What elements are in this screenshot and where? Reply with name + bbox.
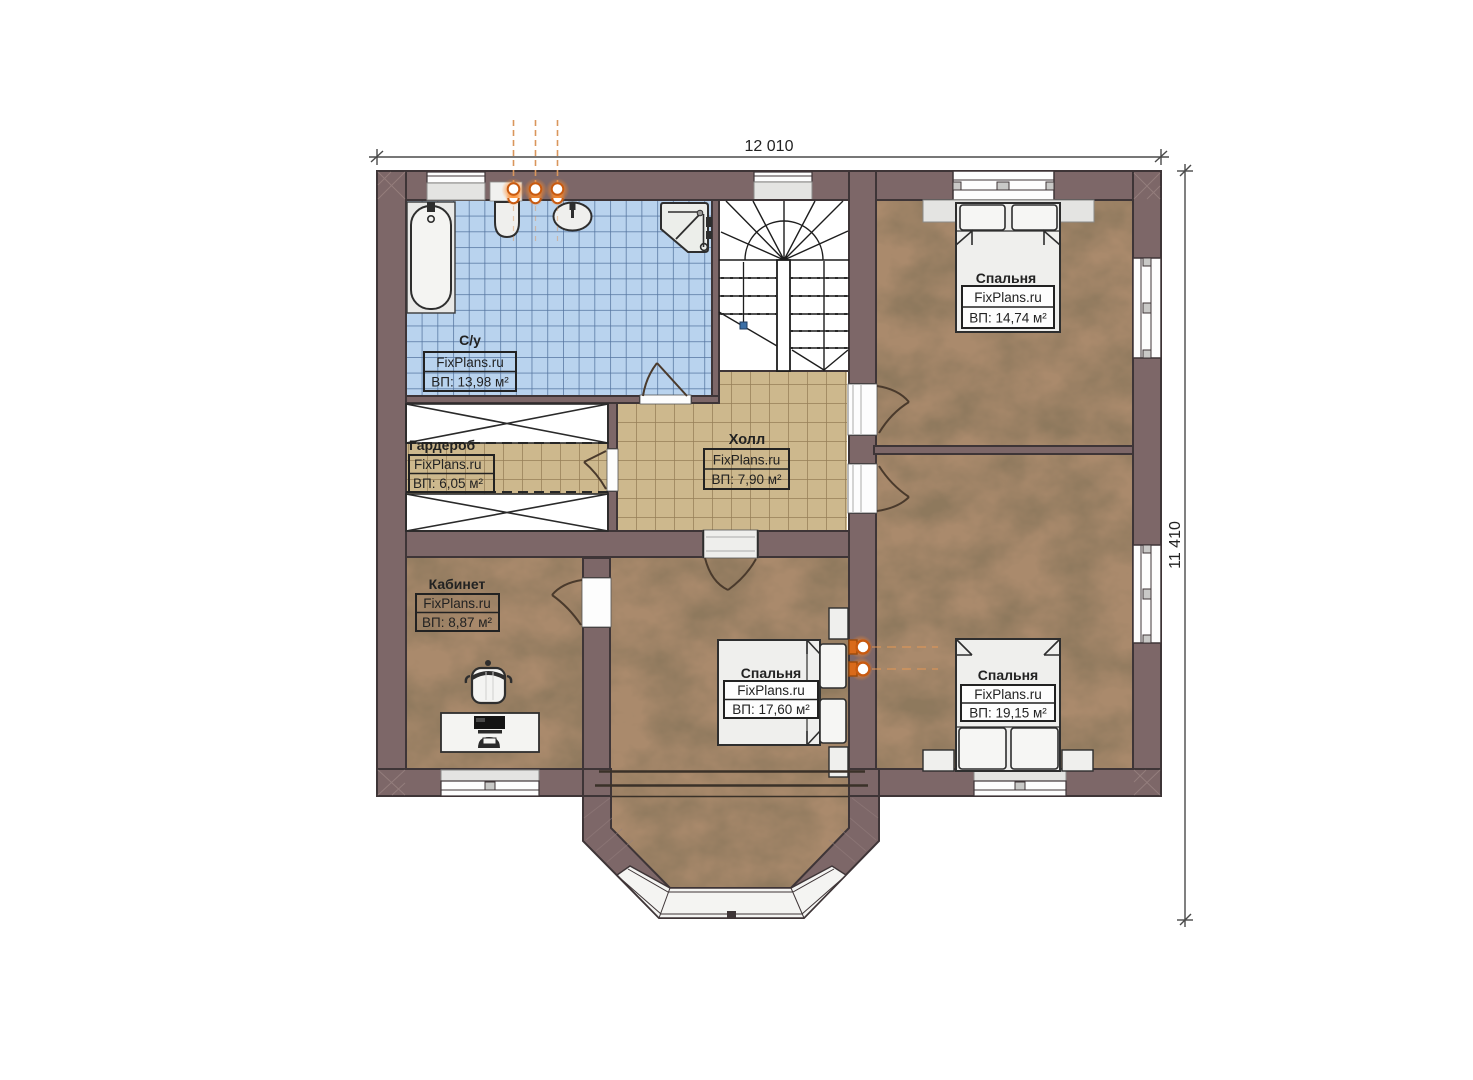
svg-text:11 410: 11 410 bbox=[1167, 521, 1184, 569]
svg-text:FixPlans.ru: FixPlans.ru bbox=[713, 453, 781, 468]
svg-text:FixPlans.ru: FixPlans.ru bbox=[974, 687, 1042, 702]
svg-text:Спальня: Спальня bbox=[741, 665, 801, 681]
svg-text:ВП: 17,60 м²: ВП: 17,60 м² bbox=[732, 702, 810, 717]
svg-text:Спальня: Спальня bbox=[978, 667, 1038, 683]
svg-text:Гардероб: Гардероб bbox=[409, 437, 476, 453]
svg-text:ВП: 7,90 м²: ВП: 7,90 м² bbox=[711, 472, 782, 487]
svg-text:ВП: 14,74 м²: ВП: 14,74 м² bbox=[969, 311, 1047, 326]
svg-text:FixPlans.ru: FixPlans.ru bbox=[436, 355, 504, 370]
svg-text:Кабинет: Кабинет bbox=[429, 576, 486, 592]
svg-text:ВП: 8,87 м²: ВП: 8,87 м² bbox=[422, 615, 493, 630]
svg-text:Спальня: Спальня bbox=[976, 270, 1036, 286]
svg-text:FixPlans.ru: FixPlans.ru bbox=[414, 457, 482, 472]
svg-text:FixPlans.ru: FixPlans.ru bbox=[974, 290, 1042, 305]
svg-text:ВП: 13,98 м²: ВП: 13,98 м² bbox=[431, 375, 509, 390]
svg-text:FixPlans.ru: FixPlans.ru bbox=[423, 596, 491, 611]
svg-text:ВП: 6,05 м²: ВП: 6,05 м² bbox=[413, 476, 484, 491]
svg-text:FixPlans.ru: FixPlans.ru bbox=[737, 683, 805, 698]
svg-text:С/у: С/у bbox=[459, 332, 481, 348]
svg-text:ВП: 19,15 м²: ВП: 19,15 м² bbox=[969, 706, 1047, 721]
svg-text:12 010: 12 010 bbox=[745, 138, 794, 155]
svg-text:Холл: Холл bbox=[729, 432, 765, 448]
